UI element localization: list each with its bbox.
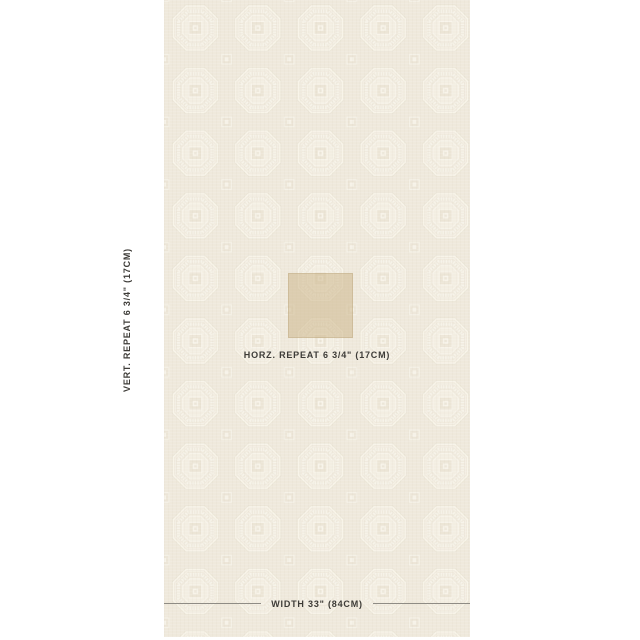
product-image-canvas: WIDTH 33" (84CM) HORZ. REPEAT 6 3/4" (17…: [0, 0, 640, 640]
width-label: WIDTH 33" (84CM): [271, 599, 363, 609]
horizontal-repeat-label: HORZ. REPEAT 6 3/4" (17CM): [164, 350, 470, 360]
width-rule-right: [373, 603, 470, 604]
vertical-repeat-label: VERT. REPEAT 6 3/4" (17CM): [122, 248, 132, 392]
fabric-swatch: WIDTH 33" (84CM): [164, 0, 470, 637]
repeat-unit-highlight-square: [288, 273, 353, 338]
width-rule-left: [164, 603, 261, 604]
width-annotation: WIDTH 33" (84CM): [164, 597, 470, 610]
product-detail-page: { "page": { "background": "#ffffff" }, "…: [0, 0, 640, 640]
